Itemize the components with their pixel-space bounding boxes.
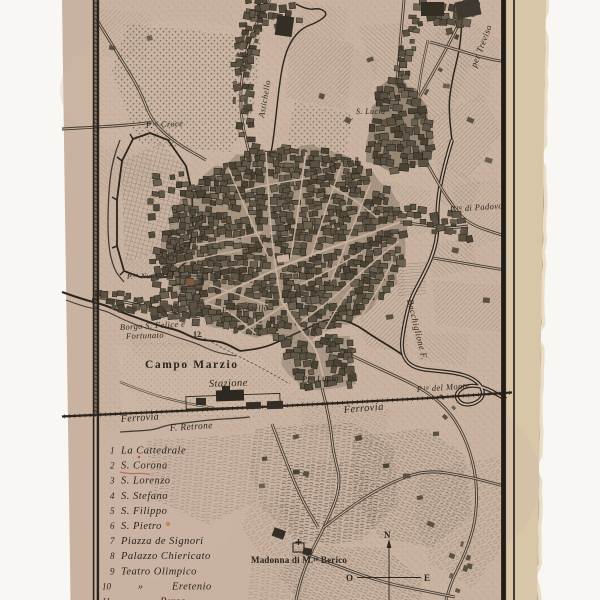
svg-text:Fortunato: Fortunato bbox=[125, 330, 164, 341]
svg-text:S. Corona: S. Corona bbox=[121, 461, 168, 472]
svg-text:La Cattedrale: La Cattedrale bbox=[120, 446, 186, 457]
svg-text:Stazione: Stazione bbox=[209, 378, 248, 390]
svg-text:E: E bbox=[424, 573, 430, 583]
svg-text:P.ta Croce: P.ta Croce bbox=[145, 118, 184, 130]
svg-text:N: N bbox=[384, 530, 391, 540]
svg-text:Palazzo Chiericato: Palazzo Chiericato bbox=[120, 551, 211, 562]
svg-text:O: O bbox=[346, 573, 353, 583]
svg-text:10: 10 bbox=[102, 581, 112, 591]
svg-text:Teatro Olimpico: Teatro Olimpico bbox=[121, 566, 197, 577]
svg-text:S. Filippo: S. Filippo bbox=[121, 506, 167, 517]
svg-text:S. Lorenzo: S. Lorenzo bbox=[121, 476, 171, 487]
svg-text:1: 1 bbox=[110, 446, 115, 456]
svg-text:S. Lucia: S. Lucia bbox=[356, 107, 385, 116]
svg-text:6: 6 bbox=[110, 521, 115, 531]
svg-text:12: 12 bbox=[193, 330, 201, 339]
svg-text:9: 9 bbox=[110, 566, 115, 576]
svg-text:Campo Marzio: Campo Marzio bbox=[145, 359, 239, 371]
svg-text:11: 11 bbox=[102, 597, 110, 600]
svg-text:Piazza de Signori: Piazza de Signori bbox=[120, 536, 204, 547]
svg-text:Berga: Berga bbox=[160, 597, 185, 600]
svg-text:3: 3 bbox=[109, 476, 115, 486]
svg-text:S. Stefano: S. Stefano bbox=[121, 491, 168, 502]
svg-text:Eretenio: Eretenio bbox=[171, 581, 212, 592]
svg-text:S. Pietro: S. Pietro bbox=[121, 521, 162, 532]
svg-text:7: 7 bbox=[110, 536, 115, 546]
svg-text:2: 2 bbox=[110, 461, 115, 471]
svg-text:8: 8 bbox=[110, 551, 115, 561]
svg-text:5: 5 bbox=[110, 506, 115, 516]
svg-text:P.ta Lupia: P.ta Lupia bbox=[301, 373, 339, 384]
svg-text:P.ta Nuova: P.ta Nuova bbox=[126, 271, 163, 281]
svg-text:»: » bbox=[138, 581, 143, 592]
svg-text:Madonna di M.te Berico: Madonna di M.te Berico bbox=[251, 555, 347, 565]
svg-text:3: 3 bbox=[200, 213, 204, 222]
svg-text:4: 4 bbox=[110, 491, 115, 501]
svg-text:8: 8 bbox=[355, 155, 359, 164]
